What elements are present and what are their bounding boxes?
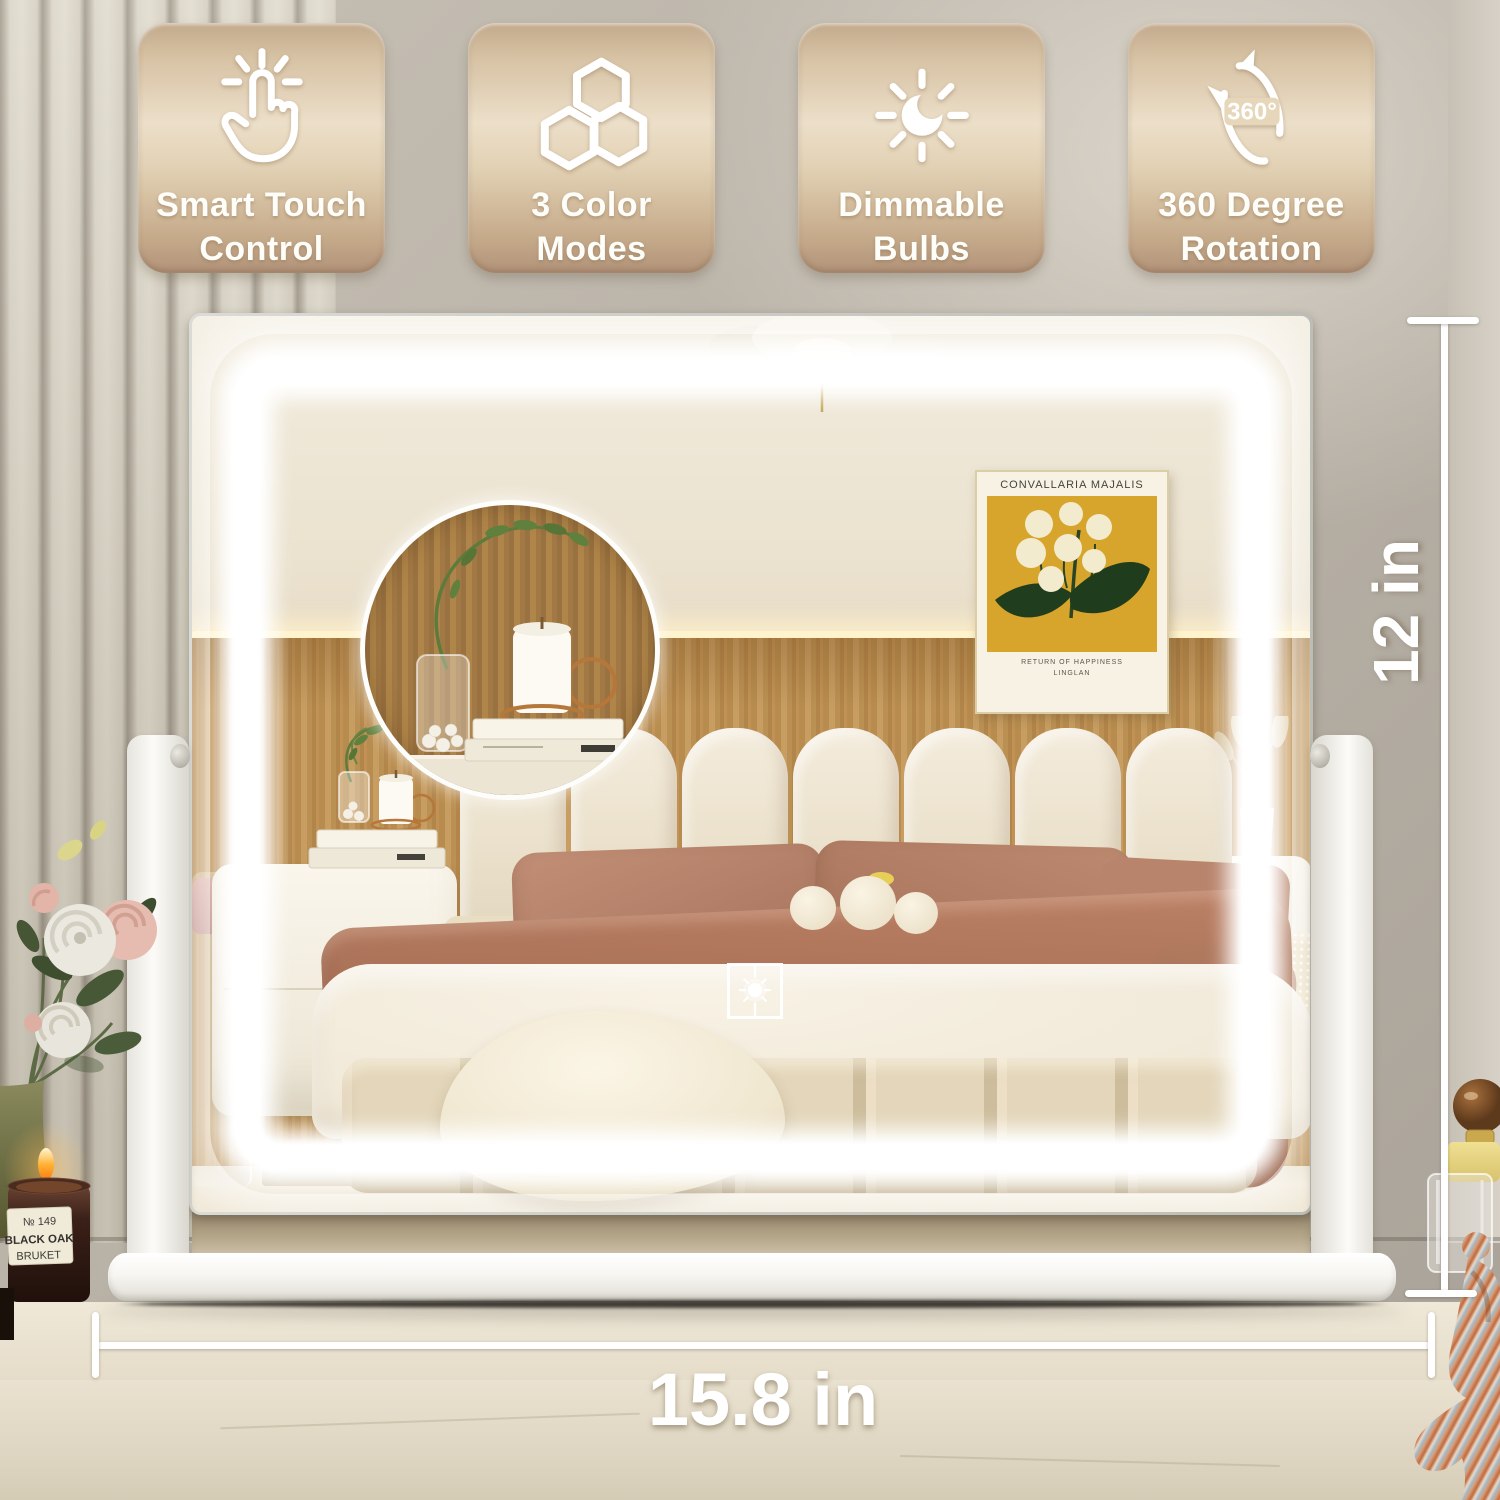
candle-label-number: № 149: [23, 1215, 57, 1228]
swivel-pivot-left: [170, 744, 190, 768]
magnifier-detail-circle: [360, 500, 660, 800]
led-ring-core: [232, 356, 1270, 1172]
wooden-ball-decor: [1453, 1079, 1500, 1133]
height-dimension-label: 12 in: [1356, 502, 1436, 722]
badge-label-line1: Smart Touch: [138, 183, 385, 227]
color-modes-icon: [468, 23, 715, 175]
feature-badge-dimmable: Dimmable Bulbs: [798, 23, 1045, 273]
width-dimension-label: 15.8 in: [563, 1356, 963, 1442]
vanity-mirror-product-infographic: CONVALLARIA MAJALIS: [0, 0, 1500, 1500]
touch-icon: [138, 23, 385, 175]
candle-label-brand: BRUKET: [16, 1249, 61, 1263]
width-dimension-cap-right: [1428, 1312, 1435, 1378]
rotation-icon: 360°: [1128, 23, 1375, 175]
height-dimension-cap-bottom: [1405, 1290, 1477, 1297]
dark-jar: [0, 1288, 14, 1340]
mirror-glass: CONVALLARIA MAJALIS: [192, 316, 1310, 1212]
badge-label-line1: Dimmable: [798, 183, 1045, 227]
magnifier-contents: [365, 505, 655, 795]
feature-badge-smart-touch: Smart Touch Control: [138, 23, 385, 273]
sun-icon: [730, 966, 780, 1016]
mirror-bottom-shadow: [192, 1212, 1310, 1256]
badge-label-line1: 3 Color: [468, 183, 715, 227]
rotation-icon-degrees: 360°: [1227, 98, 1277, 125]
foreground-roses-and-candle: № 149 BLACK OAK BRUKET: [0, 818, 330, 1340]
brightness-icon: [798, 23, 1045, 175]
feature-badge-color-modes: 3 Color Modes: [468, 23, 715, 273]
feature-badge-rotation: 360° 360 Degree Rotation: [1128, 23, 1375, 273]
height-dimension-line: [1441, 320, 1448, 1294]
width-dimension-line: [96, 1342, 1432, 1349]
vanity-mirror-frame: CONVALLARIA MAJALIS: [189, 313, 1313, 1215]
badge-label-line2: Modes: [468, 227, 715, 271]
candle-label-name: BLACK OAK: [4, 1233, 74, 1247]
foreground-right-decor: [1408, 1056, 1500, 1500]
scented-candle: № 149 BLACK OAK BRUKET: [0, 1122, 90, 1340]
mirror-touch-control-button: [727, 963, 783, 1019]
width-dimension-cap-left: [92, 1312, 99, 1378]
perfume-cap: [1466, 1130, 1494, 1144]
mirror-stand-post-right: [1311, 735, 1373, 1267]
height-dimension-cap-top: [1407, 317, 1479, 324]
badge-label-line2: Bulbs: [798, 227, 1045, 271]
badge-label-line1: 360 Degree: [1128, 183, 1375, 227]
badge-label-line2: Control: [138, 227, 385, 271]
rose-bouquet: [12, 818, 161, 1090]
badge-label-line2: Rotation: [1128, 227, 1375, 271]
swivel-pivot-right: [1310, 744, 1330, 768]
